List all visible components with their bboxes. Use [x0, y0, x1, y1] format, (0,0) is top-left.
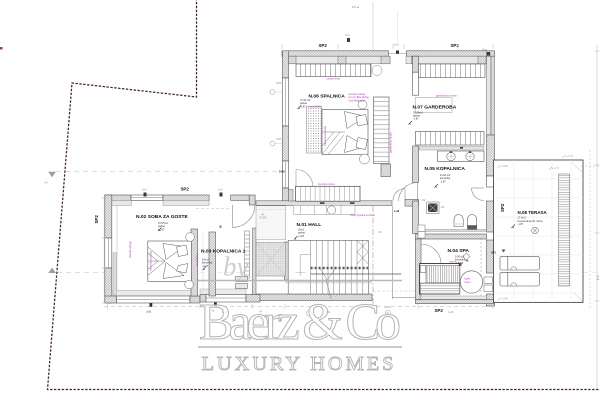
svg-text:+-1.73: +-1.73 — [552, 167, 560, 170]
svg-text:2t+6: 2t+6 — [218, 189, 223, 192]
svg-text:-1.87: -1.87 — [440, 180, 446, 183]
svg-text:LUXURY HOMES: LUXURY HOMES — [202, 353, 399, 375]
svg-text:1606: 1606 — [276, 82, 282, 85]
svg-text:zakonska postelja: zakonska postelja — [150, 251, 153, 271]
svg-text:A-A: A-A — [44, 182, 48, 185]
svg-text:map 60000: map 60000 — [309, 106, 322, 109]
svg-text:LS: LS — [422, 199, 425, 202]
svg-text:SP2: SP2 — [319, 43, 328, 48]
svg-text:SP2: SP2 — [500, 203, 505, 212]
svg-text:1+B: 1+B — [394, 209, 399, 213]
svg-text:28/1: 28/1 — [491, 252, 496, 255]
svg-text:1606: 1606 — [276, 138, 282, 141]
svg-text:N.02 SOBA ZA GOSTE: N.02 SOBA ZA GOSTE — [136, 214, 189, 220]
svg-text:SP2: SP2 — [435, 308, 444, 313]
svg-text:SP2: SP2 — [181, 187, 190, 192]
svg-text:stenske obloge: stenske obloge — [129, 241, 132, 258]
svg-text:Oak Wallpaper: Oak Wallpaper — [349, 99, 366, 102]
svg-text:+1.87: +1.87 — [298, 235, 305, 238]
svg-text:N.08 TERASA: N.08 TERASA — [518, 210, 548, 215]
svg-text:garderobna omara: garderobna omara — [390, 132, 393, 153]
svg-text:N.01 HALL: N.01 HALL — [297, 222, 322, 228]
svg-text:SP2: SP2 — [94, 215, 99, 224]
svg-text:1606: 1606 — [279, 170, 285, 174]
svg-text:2t+6: 2t+6 — [142, 189, 147, 192]
svg-text:-1.87: -1.87 — [455, 262, 461, 265]
svg-text:N.07 GARDEROBA: N.07 GARDEROBA — [413, 105, 457, 111]
svg-text:+1.87: +1.87 — [202, 265, 209, 268]
svg-text:tus kabina: tus kabina — [196, 254, 199, 266]
svg-text:zakonska postelja: zakonska postelja — [324, 126, 327, 146]
svg-text:by: by — [223, 252, 249, 282]
svg-text:garderobna omara: garderobna omara — [436, 94, 457, 97]
svg-text:1+8: 1+8 — [147, 310, 152, 313]
svg-text:2t+6: 2t+6 — [345, 34, 350, 37]
svg-text:N.04 SPA: N.04 SPA — [448, 248, 470, 254]
svg-text:N.06 SPALNICA: N.06 SPALNICA — [309, 94, 346, 100]
svg-text:N.05 KOPALNICA: N.05 KOPALNICA — [425, 166, 466, 172]
svg-text:2t+6: 2t+6 — [482, 49, 487, 52]
svg-text:75/190: 75/190 — [259, 217, 267, 220]
svg-text:Baerz & Co: Baerz & Co — [199, 294, 401, 351]
svg-text:spodnja omara: spodnja omara — [318, 183, 335, 186]
svg-text:+-0.00: +-0.00 — [501, 165, 509, 168]
svg-text:vrsta vgradna omarica: vrsta vgradna omarica — [350, 214, 375, 217]
svg-text:omara vrata: omara vrata — [327, 78, 341, 81]
svg-text:12+8: 12+8 — [394, 44, 400, 47]
svg-text:+-0.00: +-0.00 — [501, 298, 509, 301]
svg-text:-1.87: -1.87 — [413, 118, 419, 121]
svg-text:+-1.73: +-1.73 — [566, 155, 574, 158]
svg-text:kopel: kopel — [465, 281, 471, 284]
svg-text:-1.87: -1.87 — [518, 223, 524, 226]
svg-text:LS: LS — [441, 206, 444, 209]
svg-text:3+25: 3+25 — [448, 311, 454, 314]
svg-text:B-B ◀: B-B ◀ — [352, 6, 359, 9]
